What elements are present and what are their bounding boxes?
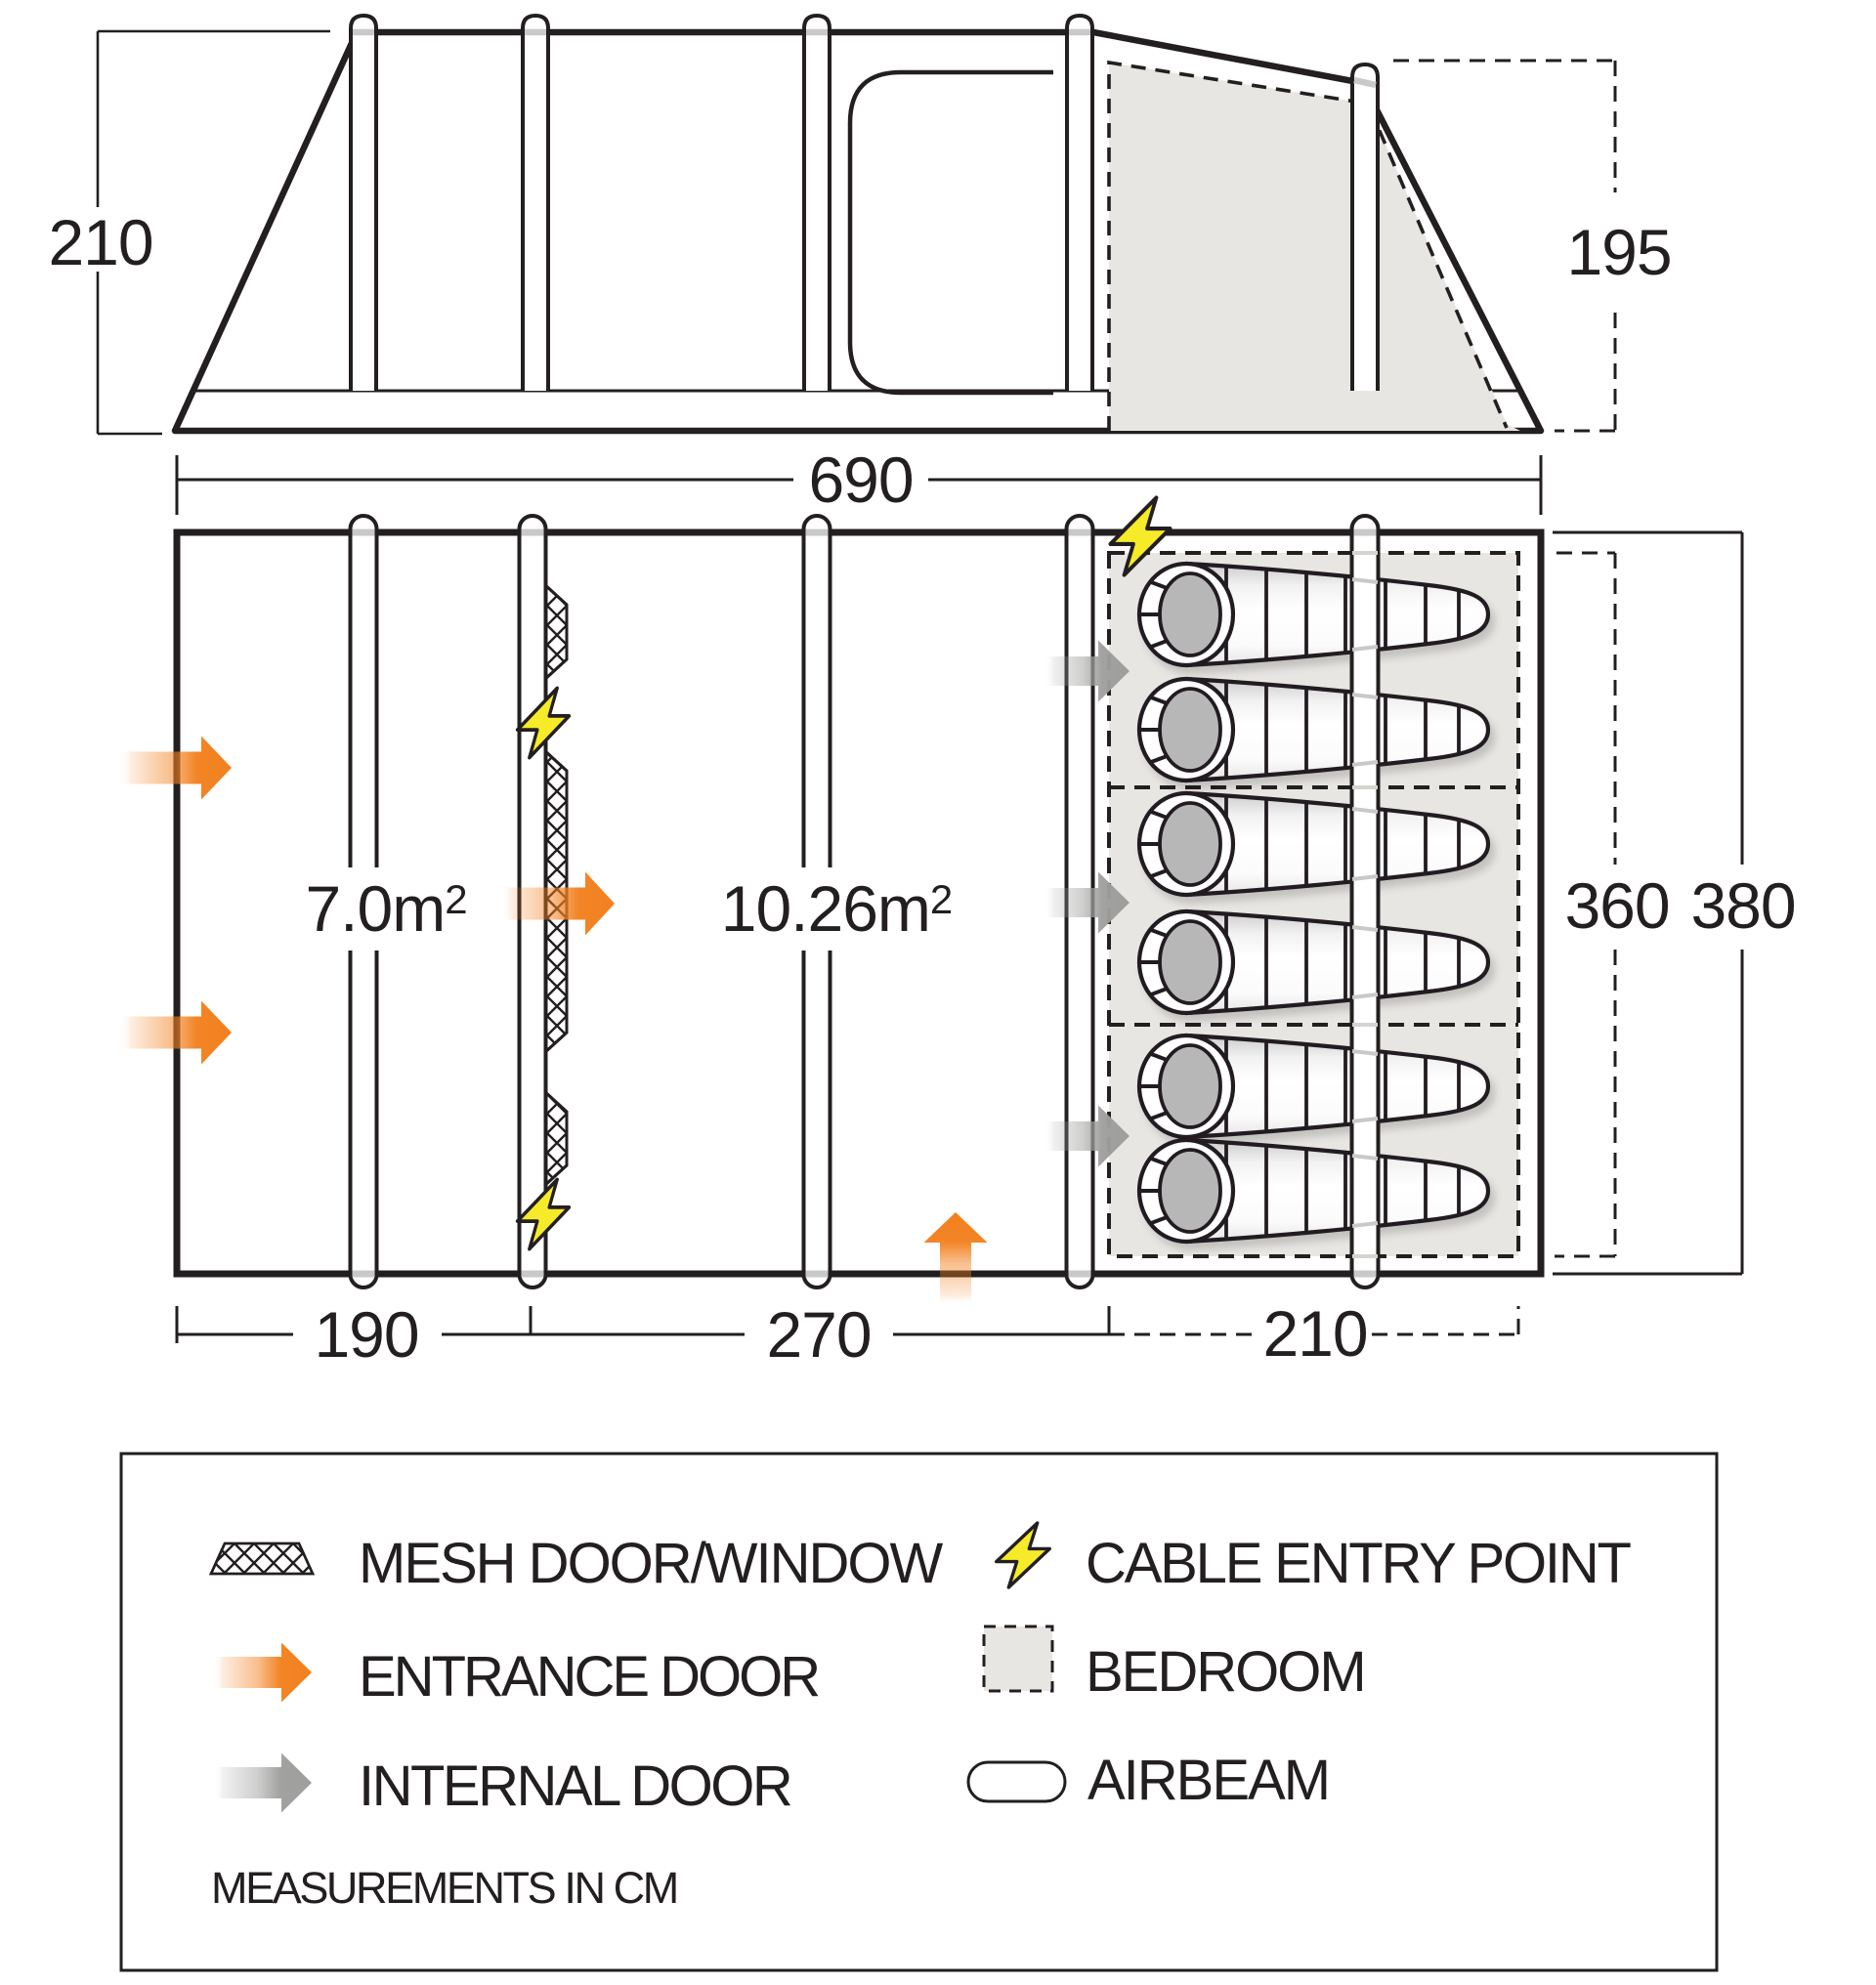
svg-text:7.0m2: 7.0m2	[305, 872, 466, 945]
svg-text:195: 195	[1566, 216, 1671, 288]
svg-text:210: 210	[48, 206, 152, 278]
svg-text:380: 380	[1690, 869, 1795, 942]
svg-text:190: 190	[314, 1298, 418, 1371]
svg-text:CABLE ENTRY POINT: CABLE ENTRY POINT	[1086, 1532, 1632, 1595]
svg-text:AIRBEAM: AIRBEAM	[1087, 1749, 1329, 1812]
svg-text:360: 360	[1564, 869, 1669, 942]
svg-text:MESH DOOR/WINDOW: MESH DOOR/WINDOW	[359, 1532, 944, 1595]
svg-text:690: 690	[808, 443, 913, 516]
svg-text:MEASUREMENTS IN CM: MEASUREMENTS IN CM	[211, 1863, 677, 1913]
svg-text:INTERNAL DOOR: INTERNAL DOOR	[359, 1754, 791, 1818]
svg-text:210: 210	[1262, 1297, 1367, 1370]
svg-text:270: 270	[766, 1298, 871, 1371]
svg-text:BEDROOM: BEDROOM	[1086, 1640, 1365, 1704]
svg-text:10.26m2: 10.26m2	[721, 872, 953, 945]
svg-text:ENTRANCE DOOR: ENTRANCE DOOR	[359, 1645, 819, 1709]
